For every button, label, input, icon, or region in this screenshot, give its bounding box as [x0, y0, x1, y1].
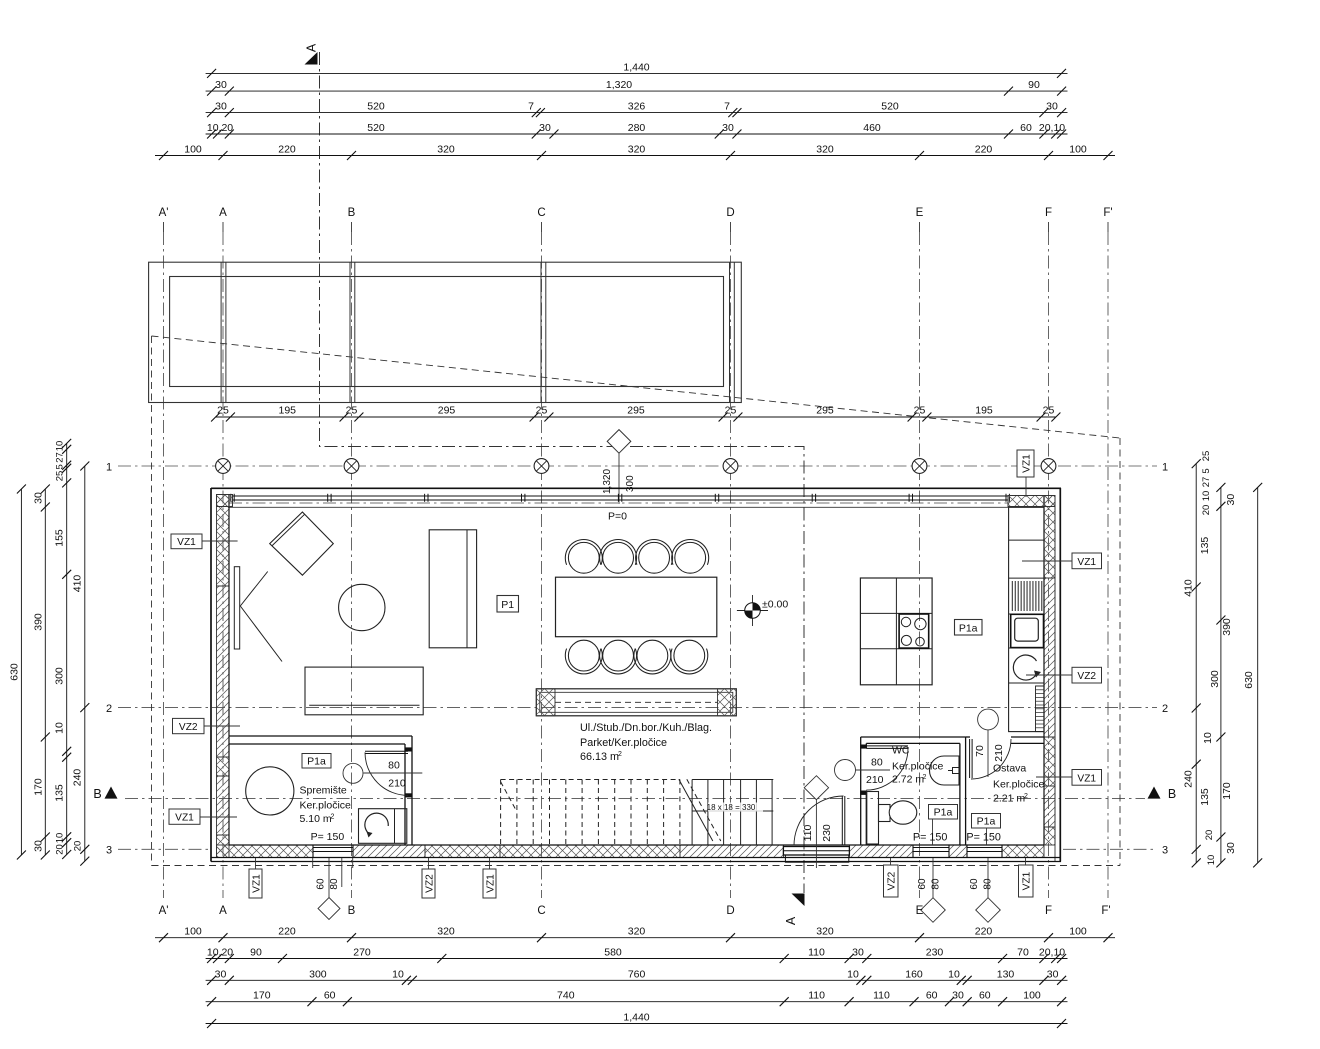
svg-text:7: 7	[528, 101, 534, 113]
svg-text:390: 390	[33, 613, 45, 631]
svg-text:Ker.pločice: Ker.pločice	[300, 800, 352, 812]
svg-text:740: 740	[557, 990, 575, 1002]
svg-text:280: 280	[628, 122, 646, 134]
svg-text:270: 270	[353, 947, 371, 959]
svg-text:P1a: P1a	[934, 807, 953, 819]
svg-text:295: 295	[438, 405, 456, 417]
svg-text:±0.00: ±0.00	[762, 599, 788, 611]
svg-text:P= 150: P= 150	[913, 832, 948, 844]
svg-text:F': F'	[1103, 207, 1112, 219]
svg-text:1,320: 1,320	[602, 469, 613, 494]
svg-text:F: F	[1045, 905, 1052, 917]
svg-text:30: 30	[33, 840, 45, 852]
svg-text:295: 295	[816, 405, 834, 417]
svg-text:160: 160	[905, 968, 923, 980]
svg-text:20: 20	[73, 841, 84, 852]
svg-text:320: 320	[816, 144, 834, 156]
svg-text:P1: P1	[501, 599, 514, 611]
svg-text:195: 195	[278, 405, 296, 417]
svg-text:VZ1: VZ1	[1077, 773, 1096, 784]
svg-text:155: 155	[54, 529, 66, 547]
svg-text:B: B	[348, 905, 356, 917]
svg-text:25: 25	[217, 405, 229, 417]
svg-text:1: 1	[106, 462, 112, 474]
svg-text:2: 2	[1024, 793, 1028, 800]
svg-text:80: 80	[388, 760, 400, 772]
svg-text:320: 320	[628, 926, 646, 938]
svg-text:230: 230	[926, 947, 944, 959]
svg-text:10: 10	[55, 441, 66, 452]
svg-text:110: 110	[808, 947, 825, 959]
svg-text:60: 60	[969, 878, 980, 890]
svg-text:A': A'	[159, 207, 169, 219]
svg-text:25: 25	[914, 405, 926, 417]
svg-text:10: 10	[847, 968, 859, 980]
svg-text:VZ1: VZ1	[1022, 871, 1033, 890]
svg-text:B: B	[1168, 787, 1176, 801]
svg-text:630: 630	[1243, 671, 1255, 689]
svg-text:195: 195	[975, 405, 993, 417]
svg-text:30: 30	[952, 990, 964, 1002]
svg-text:170: 170	[33, 778, 45, 796]
svg-text:VZ1: VZ1	[175, 813, 194, 824]
svg-text:30: 30	[1225, 494, 1237, 506]
svg-text:P=0: P=0	[608, 511, 627, 523]
svg-text:135: 135	[1199, 537, 1211, 555]
svg-text:25: 25	[1043, 405, 1055, 417]
svg-text:30: 30	[1047, 968, 1059, 980]
svg-text:B: B	[93, 787, 101, 801]
svg-text:D: D	[726, 905, 734, 917]
svg-text:170: 170	[253, 990, 271, 1002]
svg-text:30: 30	[215, 968, 227, 980]
svg-text:5: 5	[55, 464, 66, 469]
svg-text:240: 240	[72, 769, 84, 787]
svg-text:135: 135	[54, 784, 66, 802]
svg-text:VZ1: VZ1	[177, 537, 196, 548]
svg-text:20: 20	[1204, 830, 1215, 841]
svg-text:210: 210	[993, 744, 1005, 762]
svg-text:320: 320	[816, 926, 834, 938]
svg-text:10: 10	[1201, 491, 1212, 502]
svg-text:B: B	[348, 207, 356, 219]
svg-text:VZ1: VZ1	[251, 874, 262, 893]
svg-text:VZ1: VZ1	[1021, 454, 1032, 473]
svg-text:100: 100	[1023, 990, 1041, 1002]
svg-text:25: 25	[536, 405, 548, 417]
svg-text:1,320: 1,320	[606, 79, 632, 91]
svg-text:A': A'	[159, 905, 169, 917]
svg-text:300: 300	[309, 968, 327, 980]
svg-text:7: 7	[724, 101, 730, 113]
svg-text:30: 30	[1225, 842, 1237, 854]
svg-text:520: 520	[367, 122, 385, 134]
svg-text:520: 520	[881, 101, 899, 113]
svg-text:30: 30	[33, 492, 45, 504]
svg-text:3: 3	[106, 845, 112, 857]
svg-text:E: E	[916, 207, 924, 219]
svg-text:80: 80	[983, 878, 994, 890]
svg-text:E: E	[916, 905, 924, 917]
svg-text:P1a: P1a	[307, 756, 326, 768]
svg-text:25: 25	[725, 405, 737, 417]
svg-text:70: 70	[1017, 947, 1029, 959]
svg-text:2: 2	[618, 751, 622, 758]
svg-text:Parket/Ker.pločice: Parket/Ker.pločice	[580, 737, 667, 749]
svg-text:30: 30	[539, 122, 551, 134]
svg-text:20,10: 20,10	[1039, 122, 1065, 134]
svg-text:80: 80	[329, 878, 340, 890]
svg-text:1,440: 1,440	[623, 61, 649, 73]
svg-text:10: 10	[1206, 855, 1217, 866]
svg-text:C: C	[537, 905, 545, 917]
svg-text:P= 150: P= 150	[311, 831, 345, 843]
svg-text:295: 295	[627, 405, 645, 417]
svg-text:F': F'	[1101, 905, 1110, 917]
svg-text:100: 100	[1069, 926, 1087, 938]
svg-text:30: 30	[215, 101, 227, 113]
svg-text:135: 135	[1199, 788, 1211, 806]
svg-text:2: 2	[331, 814, 335, 821]
svg-text:300: 300	[54, 667, 66, 685]
svg-text:80: 80	[931, 878, 942, 890]
svg-text:110: 110	[802, 824, 814, 841]
svg-text:100: 100	[1069, 144, 1087, 156]
svg-text:VZ2: VZ2	[1077, 671, 1096, 682]
svg-text:2: 2	[1162, 703, 1168, 715]
svg-text:25: 25	[346, 405, 358, 417]
svg-text:320: 320	[437, 144, 455, 156]
svg-text:5.10 m: 5.10 m	[300, 813, 332, 825]
svg-text:1: 1	[1162, 462, 1168, 474]
svg-text:Spremište: Spremište	[300, 785, 347, 797]
svg-text:25: 25	[55, 471, 66, 482]
svg-text:110: 110	[873, 990, 890, 1002]
svg-text:30: 30	[722, 122, 734, 134]
svg-text:A: A	[784, 916, 798, 925]
svg-text:VZ2: VZ2	[424, 874, 435, 893]
svg-text:20: 20	[55, 844, 66, 855]
svg-text:60: 60	[1020, 122, 1032, 134]
svg-text:460: 460	[863, 122, 881, 134]
svg-text:70: 70	[974, 745, 986, 757]
svg-text:2: 2	[106, 703, 112, 715]
svg-text:220: 220	[278, 926, 296, 938]
svg-text:10: 10	[55, 833, 66, 844]
svg-text:60: 60	[979, 990, 991, 1002]
svg-text:P1a: P1a	[977, 816, 996, 828]
svg-text:27: 27	[55, 452, 66, 463]
svg-text:30: 30	[215, 79, 227, 91]
svg-text:220: 220	[975, 926, 993, 938]
svg-text:Ul./Stub./Dn.bor./Kuh./Blag.: Ul./Stub./Dn.bor./Kuh./Blag.	[580, 722, 712, 734]
svg-text:P= 150: P= 150	[966, 832, 1001, 844]
svg-text:25: 25	[1201, 451, 1212, 462]
svg-text:300: 300	[1209, 670, 1221, 688]
svg-text:Ostava: Ostava	[993, 763, 1026, 775]
svg-text:326: 326	[628, 101, 646, 113]
svg-text:100: 100	[184, 926, 202, 938]
svg-text:20,10: 20,10	[1039, 947, 1065, 959]
svg-text:410: 410	[1183, 579, 1195, 597]
svg-text:C: C	[537, 207, 545, 219]
svg-text:VZ1: VZ1	[485, 874, 496, 893]
svg-text:320: 320	[437, 926, 455, 938]
svg-text:60: 60	[316, 878, 327, 890]
svg-text:30: 30	[1046, 101, 1058, 113]
svg-text:27: 27	[1201, 477, 1212, 488]
svg-text:3: 3	[1162, 845, 1168, 857]
svg-text:10: 10	[948, 968, 960, 980]
svg-text:WC: WC	[892, 745, 910, 757]
svg-text:630: 630	[9, 663, 21, 681]
svg-text:210: 210	[388, 778, 406, 790]
svg-text:F: F	[1045, 207, 1052, 219]
svg-text:390: 390	[1221, 618, 1233, 636]
svg-text:5: 5	[1201, 468, 1212, 473]
svg-text:Ker.pločice: Ker.pločice	[892, 761, 944, 773]
svg-text:A: A	[305, 43, 319, 52]
svg-text:A: A	[219, 207, 227, 219]
svg-text:240: 240	[1183, 770, 1195, 788]
svg-text:320: 320	[628, 144, 646, 156]
svg-text:VZ1: VZ1	[1077, 557, 1096, 568]
svg-text:60: 60	[917, 878, 928, 890]
svg-text:10: 10	[54, 722, 66, 734]
svg-text:30: 30	[852, 947, 864, 959]
svg-text:10: 10	[1202, 732, 1214, 744]
svg-text:10: 10	[392, 968, 404, 980]
svg-text:10,20: 10,20	[207, 947, 233, 959]
svg-text:110: 110	[808, 990, 825, 1002]
svg-text:2.72 m: 2.72 m	[892, 774, 924, 786]
svg-text:220: 220	[278, 144, 296, 156]
svg-text:100: 100	[184, 144, 202, 156]
svg-text:2: 2	[923, 774, 927, 781]
svg-text:66.13 m: 66.13 m	[580, 751, 619, 763]
svg-text:Ker.pločice: Ker.pločice	[993, 779, 1045, 791]
svg-text:D: D	[726, 207, 734, 219]
svg-text:20: 20	[1201, 505, 1212, 516]
svg-text:760: 760	[628, 968, 646, 980]
svg-text:580: 580	[604, 947, 622, 959]
svg-text:60: 60	[926, 990, 938, 1002]
svg-text:90: 90	[1028, 79, 1040, 91]
svg-text:90: 90	[250, 947, 262, 959]
svg-text:80: 80	[871, 757, 883, 769]
svg-text:410: 410	[72, 575, 84, 593]
svg-text:300: 300	[625, 475, 636, 492]
svg-text:130: 130	[997, 968, 1015, 980]
svg-text:220: 220	[975, 144, 993, 156]
svg-text:2.21 m: 2.21 m	[993, 793, 1025, 805]
svg-text:170: 170	[1221, 782, 1233, 800]
svg-text:VZ2: VZ2	[179, 722, 198, 733]
svg-text:60: 60	[324, 990, 336, 1002]
svg-text:10,20: 10,20	[207, 122, 233, 134]
svg-text:230: 230	[821, 824, 833, 842]
svg-text:P1a: P1a	[959, 623, 978, 635]
svg-text:VZ2: VZ2	[887, 871, 898, 890]
svg-text:18 x 18 = 330: 18 x 18 = 330	[707, 803, 756, 812]
svg-text:520: 520	[367, 101, 385, 113]
svg-text:210: 210	[866, 774, 884, 786]
svg-text:A: A	[219, 905, 227, 917]
svg-text:1,440: 1,440	[623, 1012, 649, 1024]
